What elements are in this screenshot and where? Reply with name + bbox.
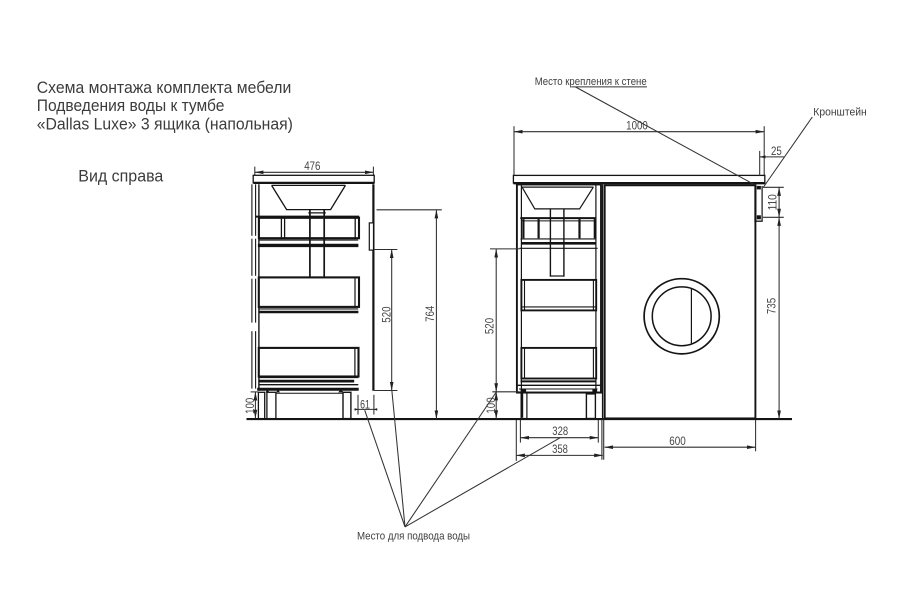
svg-text:520: 520 — [483, 318, 496, 334]
svg-text:735: 735 — [765, 298, 778, 314]
svg-text:25: 25 — [771, 145, 782, 158]
svg-text:600: 600 — [669, 435, 686, 448]
svg-text:100: 100 — [485, 397, 498, 413]
svg-text:Подведения воды к тумбе: Подведения воды к тумбе — [37, 97, 225, 115]
svg-text:1000: 1000 — [626, 119, 648, 132]
svg-text:Кронштейн: Кронштейн — [813, 107, 866, 119]
svg-text:Место крепления к стене: Место крепления к стене — [535, 76, 647, 88]
svg-text:Место для подвода воды: Место для подвода воды — [357, 530, 470, 542]
svg-text:110: 110 — [766, 194, 779, 210]
svg-text:100: 100 — [244, 398, 257, 414]
svg-text:Схема монтажа комплекта мебели: Схема монтажа комплекта мебели — [37, 79, 291, 97]
svg-text:764: 764 — [424, 305, 437, 322]
svg-text:476: 476 — [304, 160, 320, 173]
svg-text:358: 358 — [552, 443, 568, 456]
svg-text:520: 520 — [380, 307, 393, 323]
svg-text:«Dallas Luxe» 3 ящика (напольн: «Dallas Luxe» 3 ящика (напольная) — [37, 115, 293, 133]
svg-text:328: 328 — [552, 425, 568, 438]
svg-text:Вид справа: Вид справа — [78, 168, 163, 186]
svg-text:61: 61 — [360, 398, 370, 411]
